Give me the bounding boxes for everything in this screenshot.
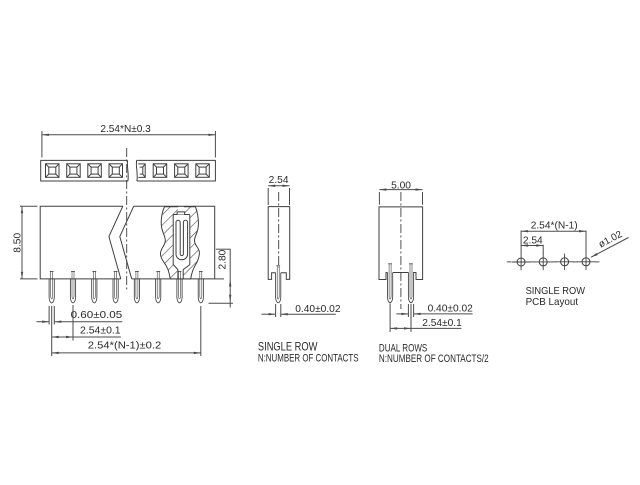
- svg-text:2.54*(N-1): 2.54*(N-1): [531, 220, 578, 231]
- svg-text:2.54: 2.54: [269, 175, 289, 186]
- svg-text:0.40±0.02: 0.40±0.02: [295, 304, 341, 315]
- svg-text:0.40±0.02: 0.40±0.02: [428, 304, 474, 315]
- svg-text:PCB Layout: PCB Layout: [526, 297, 579, 308]
- svg-text:SINGLE ROW: SINGLE ROW: [526, 286, 586, 297]
- svg-text:2.80: 2.80: [218, 249, 229, 269]
- svg-text:2.54±0.1: 2.54±0.1: [422, 318, 462, 329]
- svg-text:2.54*N±0.3: 2.54*N±0.3: [100, 124, 151, 135]
- svg-text:2.54*(N-1)±0.2: 2.54*(N-1)±0.2: [88, 340, 162, 351]
- svg-text:2.54±0.1: 2.54±0.1: [80, 326, 121, 337]
- svg-text:N:NUMBER OF CONTACTS/2: N:NUMBER OF CONTACTS/2: [379, 353, 489, 365]
- svg-text:N:NUMBER OF CONTACTS: N:NUMBER OF CONTACTS: [258, 352, 359, 364]
- svg-text:0.60±0.05: 0.60±0.05: [71, 310, 123, 321]
